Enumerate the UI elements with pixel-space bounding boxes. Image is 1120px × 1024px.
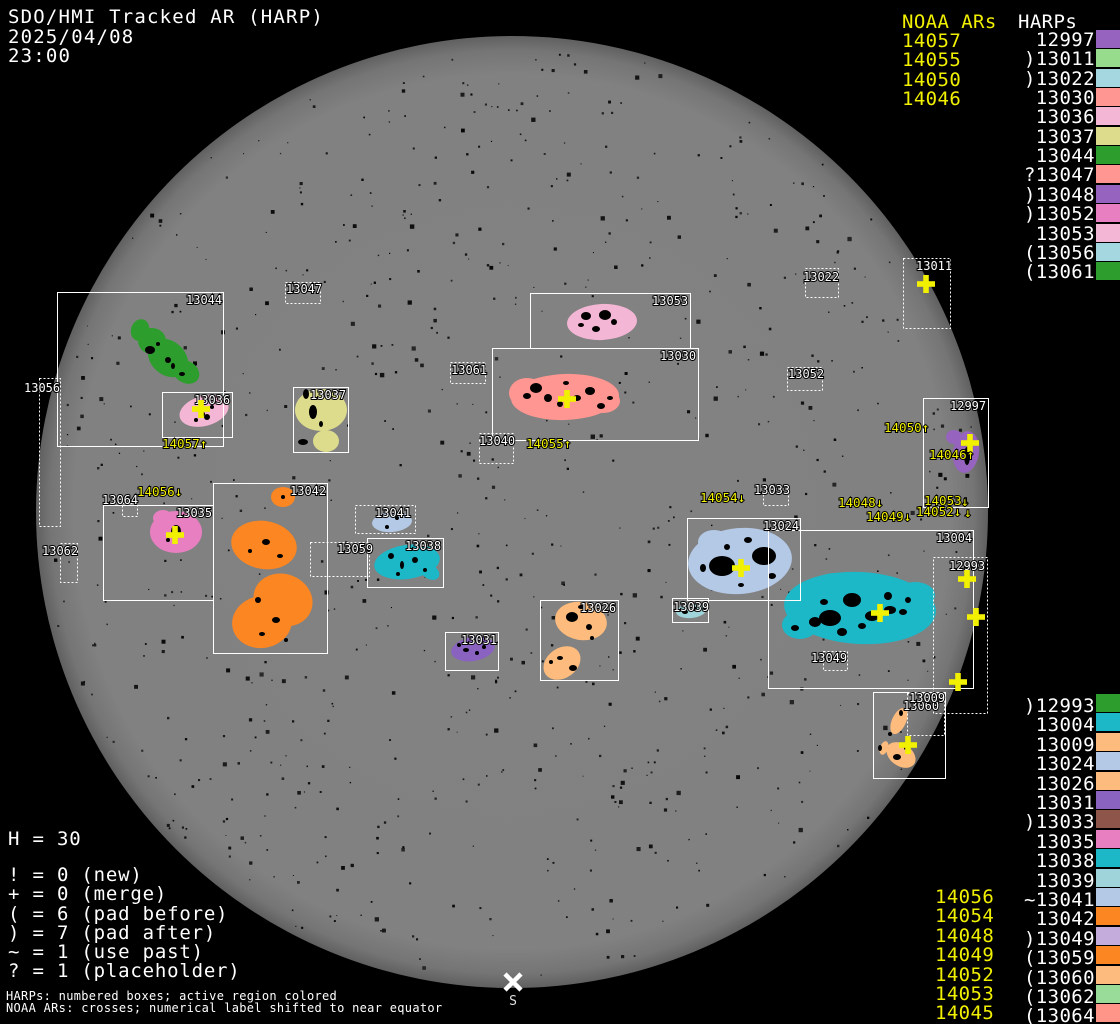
title-block: SDO/HMI Tracked AR (HARP) 2025/04/08 23:… (8, 8, 324, 67)
harp-color-swatch (1096, 49, 1120, 67)
sunspot (884, 592, 892, 600)
sunspot (171, 363, 175, 369)
sunspot (388, 553, 394, 559)
sunspot (272, 617, 280, 623)
sunspot (893, 754, 901, 760)
noaa-ar-label: 14052↓ (916, 504, 961, 519)
harp-color-swatch (1096, 146, 1120, 164)
sunspot (597, 403, 605, 409)
south-pole-label: S (509, 994, 517, 1009)
noaa-ar-label: 14056↓ (137, 484, 182, 499)
sunspot (768, 573, 776, 579)
sunspot (396, 572, 400, 576)
harp-color-swatch (1096, 165, 1120, 183)
footer-captions: HARPs: numbered boxes; active region col… (6, 990, 442, 1015)
sunspot (204, 414, 210, 420)
sunspot (281, 495, 285, 499)
sdo-hmi-harp-plot: 1304413036130371303513042130381304113059… (0, 0, 1120, 1024)
harp-color-swatch (1096, 224, 1120, 242)
sunspot (303, 389, 309, 399)
harp-box-label: 13064 (102, 493, 138, 507)
sunspot (309, 405, 317, 419)
harp-color-swatch (1096, 262, 1120, 280)
harp-color-swatch (1096, 127, 1120, 145)
harp-color-swatch (1096, 907, 1120, 925)
sunspot (262, 539, 270, 545)
harp-box-label: 13024 (763, 519, 799, 533)
harp-box-label: 13039 (673, 600, 709, 614)
harp-color-swatch (1096, 1004, 1120, 1022)
harp-box-label: 13030 (660, 349, 696, 363)
harp-box-label: 13049 (811, 651, 847, 665)
active-region-blob (153, 510, 173, 526)
sunspot (557, 401, 563, 407)
harp-box-label: 13038 (405, 539, 441, 553)
sunspot (738, 583, 744, 587)
sunspot (611, 319, 617, 325)
harp-box-label: 13044 (186, 293, 222, 307)
sunspot (899, 609, 907, 615)
noaa-caption: NOAA ARs: crosses; numerical label shift… (6, 1002, 442, 1014)
noaa-ar-item: 14045 (935, 1002, 994, 1024)
sunspot (248, 549, 252, 553)
noaa-ar-label: 14057↑ (162, 436, 207, 451)
sunspot (530, 383, 542, 393)
sunspot (809, 617, 821, 627)
page-title: SDO/HMI Tracked AR (HARP) (8, 8, 324, 28)
harp-box-label: 13022 (803, 270, 839, 284)
noaa-ar-label: 14055↑ (526, 436, 571, 451)
sunspot (463, 648, 469, 652)
sunspot (905, 597, 911, 603)
noaa-ar-item: 14046 (902, 88, 961, 110)
harp-color-swatch (1096, 694, 1120, 712)
harp-box-label: 13009 (909, 691, 945, 705)
sunspot (259, 632, 265, 636)
sunspot (166, 538, 170, 542)
active-region-blob (946, 430, 962, 444)
harp-color-swatch (1096, 185, 1120, 203)
harp-color-swatch (1096, 107, 1120, 125)
harp-box-label: 13052 (788, 367, 824, 381)
sunspot (878, 745, 882, 751)
harp-color-swatch (1096, 985, 1120, 1003)
sunspot (590, 636, 594, 640)
noaa-ar-label: 14046↑ (929, 447, 974, 462)
harp-color-swatch (1096, 30, 1120, 48)
harp-color-swatch (1096, 888, 1120, 906)
sunspot (423, 568, 427, 572)
sunspot (145, 346, 155, 354)
sunspot (319, 421, 323, 427)
noaa-ar-label: 14049↓ (866, 509, 911, 524)
sunspot (578, 323, 584, 327)
legend: ! = 0 (new) + = 0 (merge) ( = 6 (pad bef… (8, 866, 241, 982)
active-region-blob (815, 573, 855, 597)
observation-time: 23:00 (8, 47, 324, 67)
harp-color-swatch (1096, 772, 1120, 790)
harp-box-label: 13041 (375, 506, 411, 520)
active-region-blob (895, 582, 935, 608)
sunspot (607, 396, 613, 400)
harp-box-label: 13061 (451, 363, 487, 377)
harp-color-swatch (1096, 733, 1120, 751)
sunspot (412, 557, 418, 563)
harp-box-label: 13033 (754, 483, 790, 497)
sunspot (549, 660, 553, 664)
harp-item: (13061 (1000, 261, 1095, 283)
harp-color-swatch (1096, 869, 1120, 887)
harp-box-label: 12997 (950, 399, 986, 413)
harp-box-label: 13056 (24, 381, 60, 395)
sunspot (284, 638, 288, 642)
sunspot (752, 547, 776, 565)
sunspot (585, 387, 595, 395)
sunspot (544, 394, 552, 402)
sunspot (179, 372, 185, 376)
sunspot (400, 561, 404, 569)
harp-color-swatch (1096, 752, 1120, 770)
harp-item: (13064 (1000, 1005, 1095, 1024)
harp-color-swatch (1096, 849, 1120, 867)
noaa-ar-label: 14050↑ (884, 420, 929, 435)
harp-color-swatch (1096, 69, 1120, 87)
harp-box-label: 13026 (580, 601, 616, 615)
sunspot (557, 656, 563, 660)
noaa-ar-label: 14048↓ (838, 495, 883, 510)
sunspot (599, 310, 611, 320)
harp-color-swatch (1096, 966, 1120, 984)
sunspot (586, 624, 592, 630)
harp-color-swatch (1096, 243, 1120, 261)
sunspot (700, 564, 706, 572)
sunspot (569, 665, 577, 671)
noaa-ar-label: 14054↓ (700, 490, 745, 505)
legend-line-pad-before: ( = 6 (pad before) (8, 905, 241, 924)
harp-color-swatch (1096, 88, 1120, 106)
sunspot (277, 554, 283, 558)
harp-count: H = 30 (8, 830, 81, 849)
harp-color-swatch (1096, 927, 1120, 945)
sunspot (819, 610, 841, 626)
harp-box-label: 13047 (286, 282, 322, 296)
legend-line-placeholder: ? = 1 (placeholder) (8, 962, 241, 981)
noaa-ar-label: ↓ (964, 505, 972, 520)
sunspot (724, 544, 730, 550)
harp-box-label: 13031 (461, 633, 497, 647)
sunspot (475, 651, 479, 655)
harp-color-swatch (1096, 946, 1120, 964)
sunspot (709, 556, 735, 576)
sunspot (563, 381, 569, 385)
harp-color-swatch (1096, 713, 1120, 731)
sunspot (858, 623, 866, 629)
sunspot (581, 312, 591, 320)
sunspot (385, 525, 389, 529)
harp-color-swatch (1096, 830, 1120, 848)
sunspot (298, 439, 308, 445)
harp-box-label: 13004 (936, 531, 972, 545)
harp-box-label: 13059 (337, 542, 373, 556)
sunspot (165, 357, 171, 363)
sunspot (837, 628, 847, 636)
harp-color-swatch (1096, 791, 1120, 809)
sunspot (888, 732, 892, 736)
harp-box-label: 13042 (290, 484, 326, 498)
sunspot (744, 537, 752, 543)
sunspot (820, 599, 828, 605)
legend-line-merge: + = 0 (merge) (8, 885, 241, 904)
harp-box-label: 13035 (176, 506, 212, 520)
sunspot (194, 418, 198, 422)
harp-color-swatch (1096, 810, 1120, 828)
sunspot (843, 593, 861, 607)
sunspot (523, 393, 531, 399)
sunspot (566, 612, 578, 622)
harp-box-label: 13040 (479, 434, 515, 448)
active-region-blob (698, 530, 730, 554)
harp-box-label: 13011 (916, 259, 952, 273)
harp-box-label: 13053 (652, 294, 688, 308)
harp-color-swatch (1096, 204, 1120, 222)
sunspot (592, 326, 600, 332)
harp-box-label: 13062 (42, 544, 78, 558)
sunspot (791, 625, 799, 631)
harp-box-label: 13037 (310, 388, 346, 402)
sunspot (255, 597, 261, 603)
active-region-blob (313, 430, 339, 452)
sunspot (156, 342, 160, 346)
